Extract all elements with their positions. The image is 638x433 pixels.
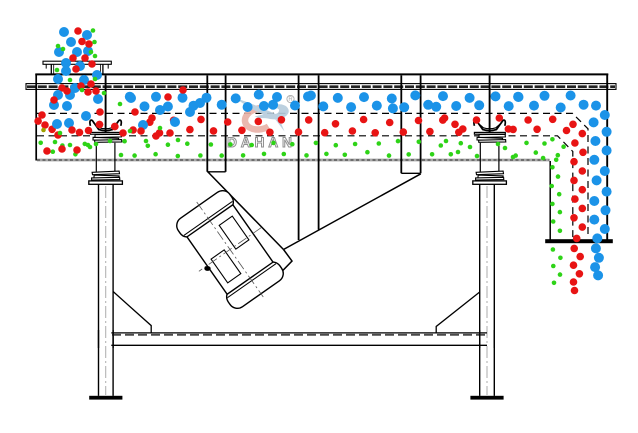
svg-text:DAHAN: DAHAN	[227, 135, 296, 150]
